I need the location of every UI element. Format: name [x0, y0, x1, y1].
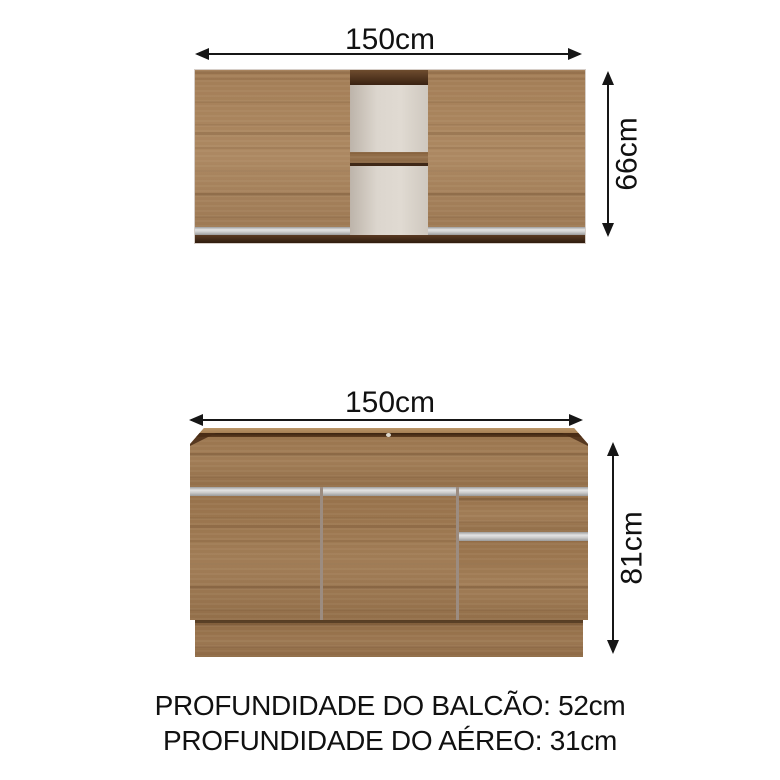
- drawer-front: [459, 496, 588, 532]
- lower-right-door: [459, 541, 588, 620]
- lower-right-door-handle: [459, 532, 588, 541]
- depth-caption-balcao: PROFUNDIDADE DO BALCÃO: 52cm: [0, 688, 780, 723]
- depth-captions: PROFUNDIDADE DO BALCÃO: 52cm PROFUNDIDAD…: [0, 688, 780, 758]
- lower-width-label: 150cm: [195, 386, 585, 420]
- lower-left-door-handle: [190, 487, 320, 496]
- lower-left-door: [190, 496, 320, 620]
- door-gap: [456, 487, 459, 620]
- upper-right-door-handle: [428, 227, 585, 235]
- arrowhead-right-icon: [569, 414, 583, 426]
- niche-compartment-bottom: [350, 166, 428, 235]
- lower-middle-door: [323, 496, 456, 620]
- upper-height-dimension-line: [607, 73, 609, 235]
- upper-cabinet-base-strip: [195, 235, 585, 243]
- depth-caption-aereo: PROFUNDIDADE DO AÉREO: 31cm: [0, 723, 780, 758]
- lower-height-dimension-line: [612, 444, 614, 652]
- plinth: [195, 620, 583, 657]
- niche-compartment-top: [350, 85, 428, 152]
- top-right-interior-wedge: [562, 433, 588, 446]
- arrowhead-left-icon: [189, 414, 203, 426]
- lower-base-cabinet: [190, 428, 588, 658]
- upper-left-door-handle: [195, 227, 350, 235]
- lower-middle-door-handle: [323, 487, 456, 496]
- niche-shelf: [350, 152, 428, 166]
- upper-left-door: [195, 70, 350, 227]
- lower-width-dimension-line: [191, 419, 581, 421]
- arrowhead-right-icon: [568, 48, 582, 60]
- upper-wall-cabinet: [195, 70, 585, 243]
- product-dimension-diagram: 150cm 66cm 150cm: [0, 0, 780, 780]
- niche-top-edge: [350, 70, 428, 85]
- door-gap: [320, 487, 323, 620]
- mount-hole-dot: [386, 433, 391, 437]
- open-shelf-niche: [350, 70, 428, 235]
- upper-width-dimension-line: [197, 53, 580, 55]
- upper-height-label: 66cm: [611, 73, 645, 235]
- drawer-handle: [459, 487, 588, 496]
- lower-height-label: 81cm: [616, 444, 650, 652]
- upper-width-label: 150cm: [195, 23, 585, 57]
- upper-right-door: [428, 70, 585, 227]
- open-top-box: [190, 428, 588, 487]
- arrowhead-left-icon: [195, 48, 209, 60]
